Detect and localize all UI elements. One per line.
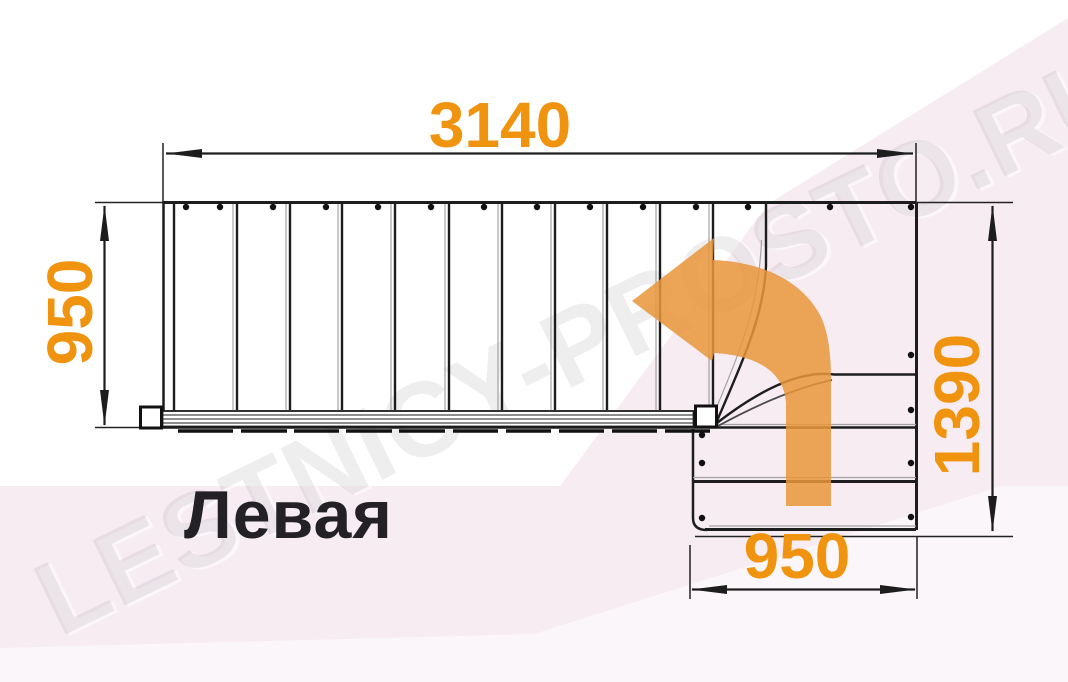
dimension-label-landing-width: 950 bbox=[697, 524, 897, 588]
upper-flight-risers bbox=[174, 204, 713, 427]
dimension-label-total-depth: 1390 bbox=[925, 305, 989, 505]
variant-label: Левая bbox=[184, 476, 393, 554]
dimension-label-flight-width: 950 bbox=[38, 212, 102, 412]
staircase-plan-drawing: LESTNICY-PROSTO.RU bbox=[0, 0, 1068, 682]
handrail bbox=[163, 411, 694, 427]
newel-post-corner bbox=[696, 406, 717, 427]
dimension-label-total-length: 3140 bbox=[400, 93, 600, 157]
newel-post-start bbox=[141, 407, 162, 428]
